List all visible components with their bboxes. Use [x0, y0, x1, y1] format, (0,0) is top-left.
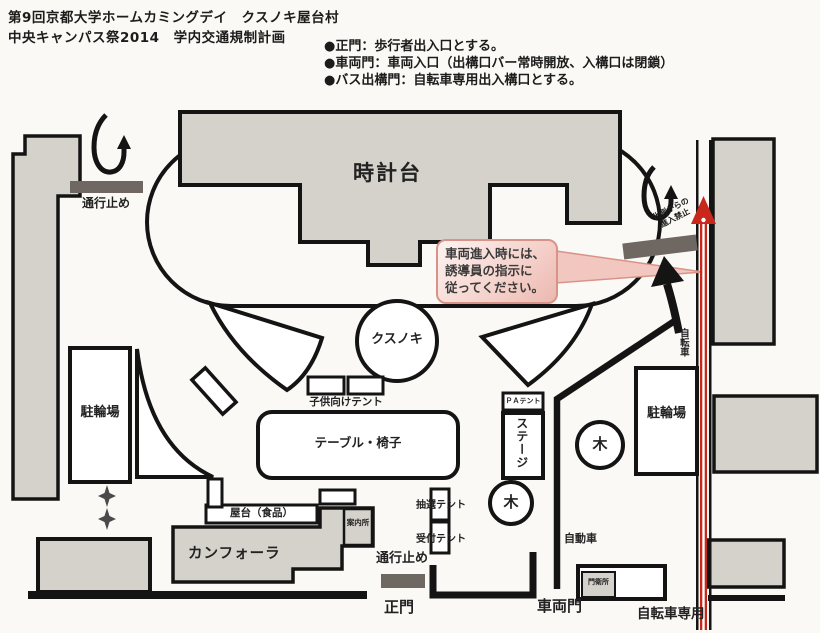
callout-line-2: 誘導員の指示に — [445, 263, 549, 280]
camphora-label: カンフォーラ — [188, 546, 281, 563]
south-wall — [28, 591, 367, 599]
kusunoki-label: クスノキ — [363, 333, 431, 348]
small-planter-box — [192, 368, 236, 414]
building-east-middle — [714, 396, 817, 472]
campus-traffic-map-page: 第9回京都大学ホームカミングデイ クスノキ屋台村 中央キャンパス祭2014 学内… — [0, 0, 820, 633]
tree-label-1: 木 — [585, 436, 615, 453]
main-gate-road-outline — [433, 552, 533, 595]
bike-parking-left-label: 駐輪場 — [70, 406, 130, 421]
small-box-1 — [208, 479, 222, 507]
road-closed-north-label: 通行止め — [82, 197, 130, 211]
car-route-label: 自動車 — [564, 533, 597, 546]
southeast-wall — [708, 595, 785, 601]
lawn-curve-southwest — [137, 349, 213, 477]
building-east-south — [708, 540, 784, 587]
reception-tent-label: 受付テント — [416, 534, 466, 546]
food-stalls-label: 屋台（食品） — [206, 507, 317, 519]
campus-map-drawing — [0, 0, 820, 633]
lottery-tent-label: 抽選テント — [416, 500, 466, 512]
small-box-2 — [320, 490, 355, 504]
u-turn-arrow-icon-west — [94, 115, 131, 172]
tree-label-2: 木 — [496, 494, 526, 511]
lawn-wedge-west — [210, 303, 322, 390]
vehicle-gate-label: 車両門 — [537, 598, 582, 615]
building-southwest — [38, 539, 150, 592]
bike-parking-right-label: 駐輪場 — [636, 407, 697, 422]
bicycle-only-label: 自転車専用 — [637, 607, 705, 623]
kids-tent-box-2 — [348, 377, 383, 394]
table-chairs-label: テーブル・椅子 — [258, 436, 458, 450]
clock-tower-label: 時計台 — [353, 161, 422, 185]
pa-tent-label: ＰＡテント — [503, 397, 543, 405]
kids-tent-label: 子供向けテント — [305, 396, 387, 408]
guidance-callout-bubble: 車両進入時には、 誘導員の指示に 従ってください。 — [436, 239, 558, 304]
barrier-bar-north — [70, 181, 143, 193]
bicycle-route-label: 自転車 — [677, 328, 688, 357]
info-desk-label: 案内所 — [343, 519, 373, 528]
road-closed-main-gate-label: 通行止め — [376, 552, 428, 567]
callout-line-1: 車両進入時には、 — [445, 246, 549, 263]
gate-guard-label: 門衛所 — [582, 578, 615, 586]
main-gate-label: 正門 — [384, 599, 414, 616]
lawn-wedge-east — [482, 304, 592, 385]
kids-tent-box-1 — [308, 377, 344, 394]
callout-line-3: 従ってください。 — [445, 280, 549, 297]
barrier-bar-main-gate — [381, 574, 425, 588]
stage-label: ステージ — [514, 417, 528, 469]
building-east-north — [713, 139, 774, 344]
sparkle-icon-1 — [98, 485, 116, 507]
sparkle-icon-2 — [98, 508, 116, 530]
